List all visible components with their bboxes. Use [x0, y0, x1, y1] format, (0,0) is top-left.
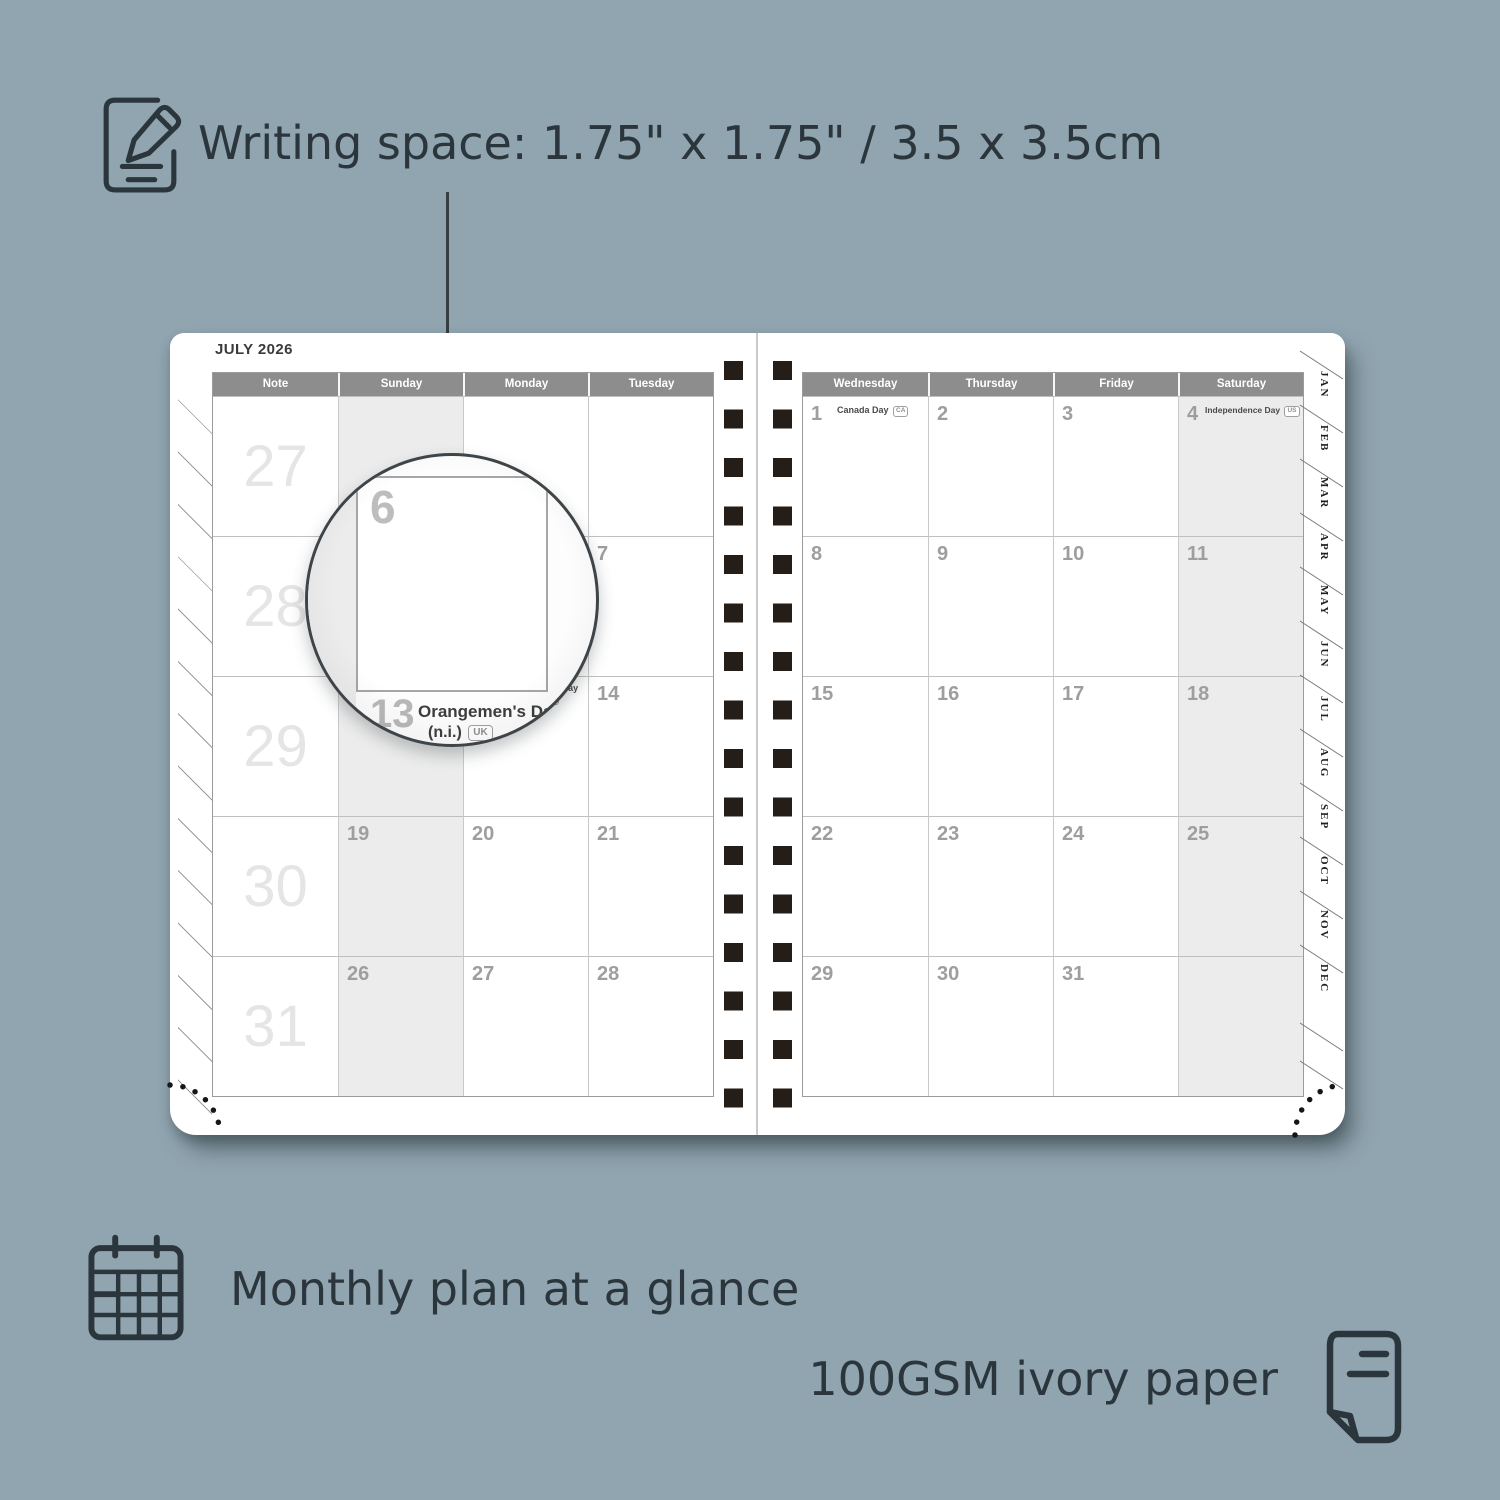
lens-shading: [308, 456, 596, 744]
dotted-corner-left: [165, 1080, 235, 1150]
day-cell: 14: [588, 676, 713, 816]
note-week-cell: 30: [213, 816, 338, 956]
day-cell: 4Independence Day US: [1178, 396, 1303, 536]
date-number: 2: [937, 403, 948, 426]
note-week-cell: 31: [213, 956, 338, 1096]
date-number: 25: [1187, 823, 1209, 846]
writing-space-caption: Writing space: 1.75" x 1.75" / 3.5 x 3.5…: [198, 116, 1163, 170]
day-cell: [588, 396, 713, 536]
date-number: 11: [1187, 543, 1208, 566]
date-number: 22: [811, 823, 833, 846]
day-cell: 29: [803, 956, 928, 1096]
day-cell: 24: [1053, 816, 1178, 956]
day-header-note: Note: [213, 373, 338, 396]
month-tab-nov: NOV: [1308, 902, 1330, 948]
date-number: 26: [347, 963, 369, 986]
day-cell: 23: [928, 816, 1053, 956]
month-tab-may: MAY: [1308, 578, 1330, 624]
date-number: 21: [597, 823, 619, 846]
date-number: 15: [811, 683, 833, 706]
day-cell: 3: [1053, 396, 1178, 536]
month-tab-jun: JUN: [1308, 632, 1330, 678]
date-number: 18: [1187, 683, 1209, 706]
day-header-saturday: Saturday: [1178, 373, 1303, 396]
date-number: 24: [1062, 823, 1084, 846]
day-cell: 10: [1053, 536, 1178, 676]
date-number: 31: [1062, 963, 1084, 986]
holiday-label: Independence Day US: [1205, 405, 1300, 417]
planner-product-image: Writing space: 1.75" x 1.75" / 3.5 x 3.5…: [0, 0, 1500, 1500]
holiday-country-badge: CA: [893, 406, 908, 417]
day-cell: 15: [803, 676, 928, 816]
monthly-plan-caption: Monthly plan at a glance: [230, 1262, 799, 1316]
day-cell: 20: [463, 816, 588, 956]
day-cell: 8: [803, 536, 928, 676]
month-title: JULY 2026: [215, 341, 293, 358]
day-cell: 25: [1178, 816, 1303, 956]
right-page-grid: WednesdayThursdayFridaySaturday1Canada D…: [802, 372, 1304, 1097]
date-number: 19: [347, 823, 369, 846]
paper-caption: 100GSM ivory paper: [808, 1352, 1278, 1406]
day-cell: 26: [338, 956, 463, 1096]
day-header-wednesday: Wednesday: [803, 373, 928, 396]
day-header-sunday: Sunday: [338, 373, 463, 396]
month-tab-oct: OCT: [1308, 848, 1330, 894]
month-tab-feb: FEB: [1308, 416, 1330, 462]
spiral-binding-right: [773, 361, 792, 1117]
day-cell: 27: [463, 956, 588, 1096]
date-number: 17: [1062, 683, 1084, 706]
month-tab-jul: JUL: [1308, 686, 1330, 732]
date-number: 1: [811, 403, 822, 426]
day-cell: 17: [1053, 676, 1178, 816]
day-cell: 1Canada Day CA: [803, 396, 928, 536]
calendar-grid-icon: [84, 1230, 188, 1348]
week-number: 27: [243, 433, 308, 500]
date-number: 16: [937, 683, 959, 706]
date-number: 10: [1062, 543, 1084, 566]
day-cell: 22: [803, 816, 928, 956]
page-edge-hatching: [178, 395, 212, 1133]
date-number: 27: [472, 963, 494, 986]
date-number: 9: [937, 543, 948, 566]
notepad-pencil-icon: [90, 78, 190, 196]
day-header-monday: Monday: [463, 373, 588, 396]
day-header-friday: Friday: [1053, 373, 1178, 396]
month-tab-apr: APR: [1308, 524, 1330, 570]
date-number: 28: [597, 963, 619, 986]
week-number: 30: [243, 853, 308, 920]
day-cell: 28: [588, 956, 713, 1096]
month-tab-jan: JAN: [1308, 362, 1330, 408]
page-gap-line: [756, 333, 758, 1135]
dotted-corner-right: [1290, 1080, 1360, 1150]
day-cell: 31: [1053, 956, 1178, 1096]
month-tab-dec: DEC: [1308, 956, 1330, 1002]
date-number: 29: [811, 963, 833, 986]
day-cell: 11: [1178, 536, 1303, 676]
day-cell: 16: [928, 676, 1053, 816]
month-tab-sep: SEP: [1308, 794, 1330, 840]
day-cell: 9: [928, 536, 1053, 676]
spiral-binding-left: [724, 361, 743, 1117]
date-number: 8: [811, 543, 822, 566]
day-header-tuesday: Tuesday: [588, 373, 713, 396]
day-cell: 19: [338, 816, 463, 956]
date-number: 30: [937, 963, 959, 986]
paper-sheet-icon: [1322, 1330, 1404, 1444]
date-number: 3: [1062, 403, 1073, 426]
week-number: 29: [243, 713, 308, 780]
day-cell: [1178, 956, 1303, 1096]
date-number: 23: [937, 823, 959, 846]
month-tab-mar: MAR: [1308, 470, 1330, 516]
day-cell: 30: [928, 956, 1053, 1096]
date-number: 20: [472, 823, 494, 846]
week-number: 28: [243, 573, 308, 640]
day-cell: 7: [588, 536, 713, 676]
date-number: 4: [1187, 403, 1198, 426]
week-number: 31: [243, 993, 308, 1060]
holiday-label: Canada Day CA: [837, 405, 908, 417]
day-cell: 18: [1178, 676, 1303, 816]
month-tab-aug: AUG: [1308, 740, 1330, 786]
date-number: 14: [597, 683, 619, 706]
date-number: 7: [597, 543, 608, 566]
day-header-thursday: Thursday: [928, 373, 1053, 396]
day-cell: 21: [588, 816, 713, 956]
day-cell: 2: [928, 396, 1053, 536]
magnifier-circle: 6 7 13 Orangemen's Day (n.i.) UK: [305, 453, 599, 747]
